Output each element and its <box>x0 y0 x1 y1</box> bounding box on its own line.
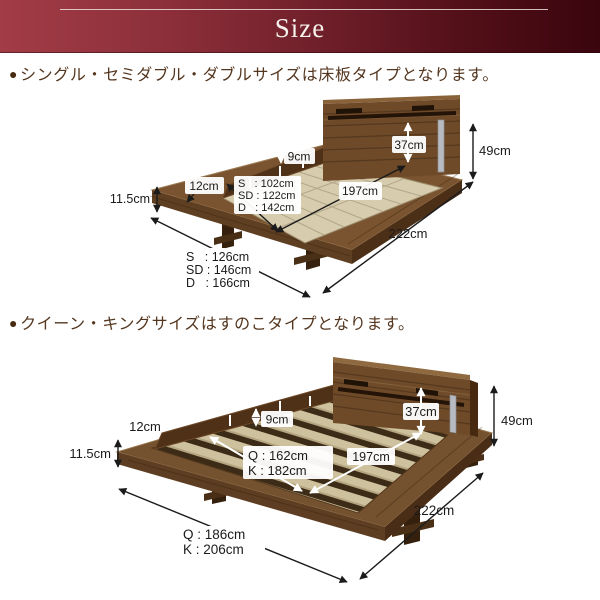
title-banner: Size <box>0 0 600 53</box>
headboard-height-label: 37cm <box>394 138 423 152</box>
inner-width-q: Q : 162cm <box>248 448 308 463</box>
total-length-label: 222cm <box>414 503 455 518</box>
headboard-vent-slot <box>336 108 362 114</box>
sleeping-length-label: 197cm <box>352 450 390 464</box>
page-title: Size <box>0 13 600 43</box>
sleeping-length-label: 197cm <box>342 184 378 198</box>
headboard-metal-strip <box>450 395 456 433</box>
inner-width-s: S : 102cm <box>238 178 294 190</box>
inner-width-k: K : 182cm <box>248 463 307 478</box>
headboard-vent-slot <box>412 105 434 111</box>
outer-width-d: D : 166cm <box>186 276 250 290</box>
outer-width-q: Q : 186cm <box>183 527 245 542</box>
bullet-icon: ● <box>9 65 18 87</box>
stage-depth-label: 12cm <box>189 179 218 193</box>
outer-width-sd: SD : 146cm <box>186 263 251 277</box>
section-floorboard-heading: ● シングル・セミダブル・ダブルサイズは床板タイプとなります。 <box>9 65 595 87</box>
bed-diagram-floorboard: 11.5cm 12cm 9cm S : 102cm SD : 122cm D :… <box>0 88 600 306</box>
section-floorboard-heading-text: シングル・セミダブル・ダブルサイズは床板タイプとなります。 <box>20 65 499 87</box>
outer-width-s: S : 126cm <box>186 250 249 264</box>
bed-diagram-slatted: 11.5cm 12cm 9cm Q : 162cm K : 182cm 197c… <box>0 333 600 593</box>
rail-height-label: 9cm <box>266 413 289 427</box>
total-height-label: 49cm <box>501 413 533 428</box>
headboard-height-label: 37cm <box>405 404 437 419</box>
frame-thickness-label: 11.5cm <box>69 446 111 461</box>
total-height-label: 49cm <box>479 143 511 158</box>
inner-width-sd: SD : 122cm <box>238 190 295 202</box>
rail-height-label: 9cm <box>288 150 311 164</box>
inner-width-d: D : 142cm <box>238 202 294 214</box>
headboard-metal-strip <box>438 120 444 172</box>
total-length-label: 222cm <box>388 226 427 241</box>
outer-width-k: K : 206cm <box>183 542 244 557</box>
frame-thickness-label: 11.5cm <box>110 192 150 206</box>
banner-rule <box>60 9 548 10</box>
stage-depth-label: 12cm <box>129 419 161 434</box>
headboard <box>323 95 460 181</box>
